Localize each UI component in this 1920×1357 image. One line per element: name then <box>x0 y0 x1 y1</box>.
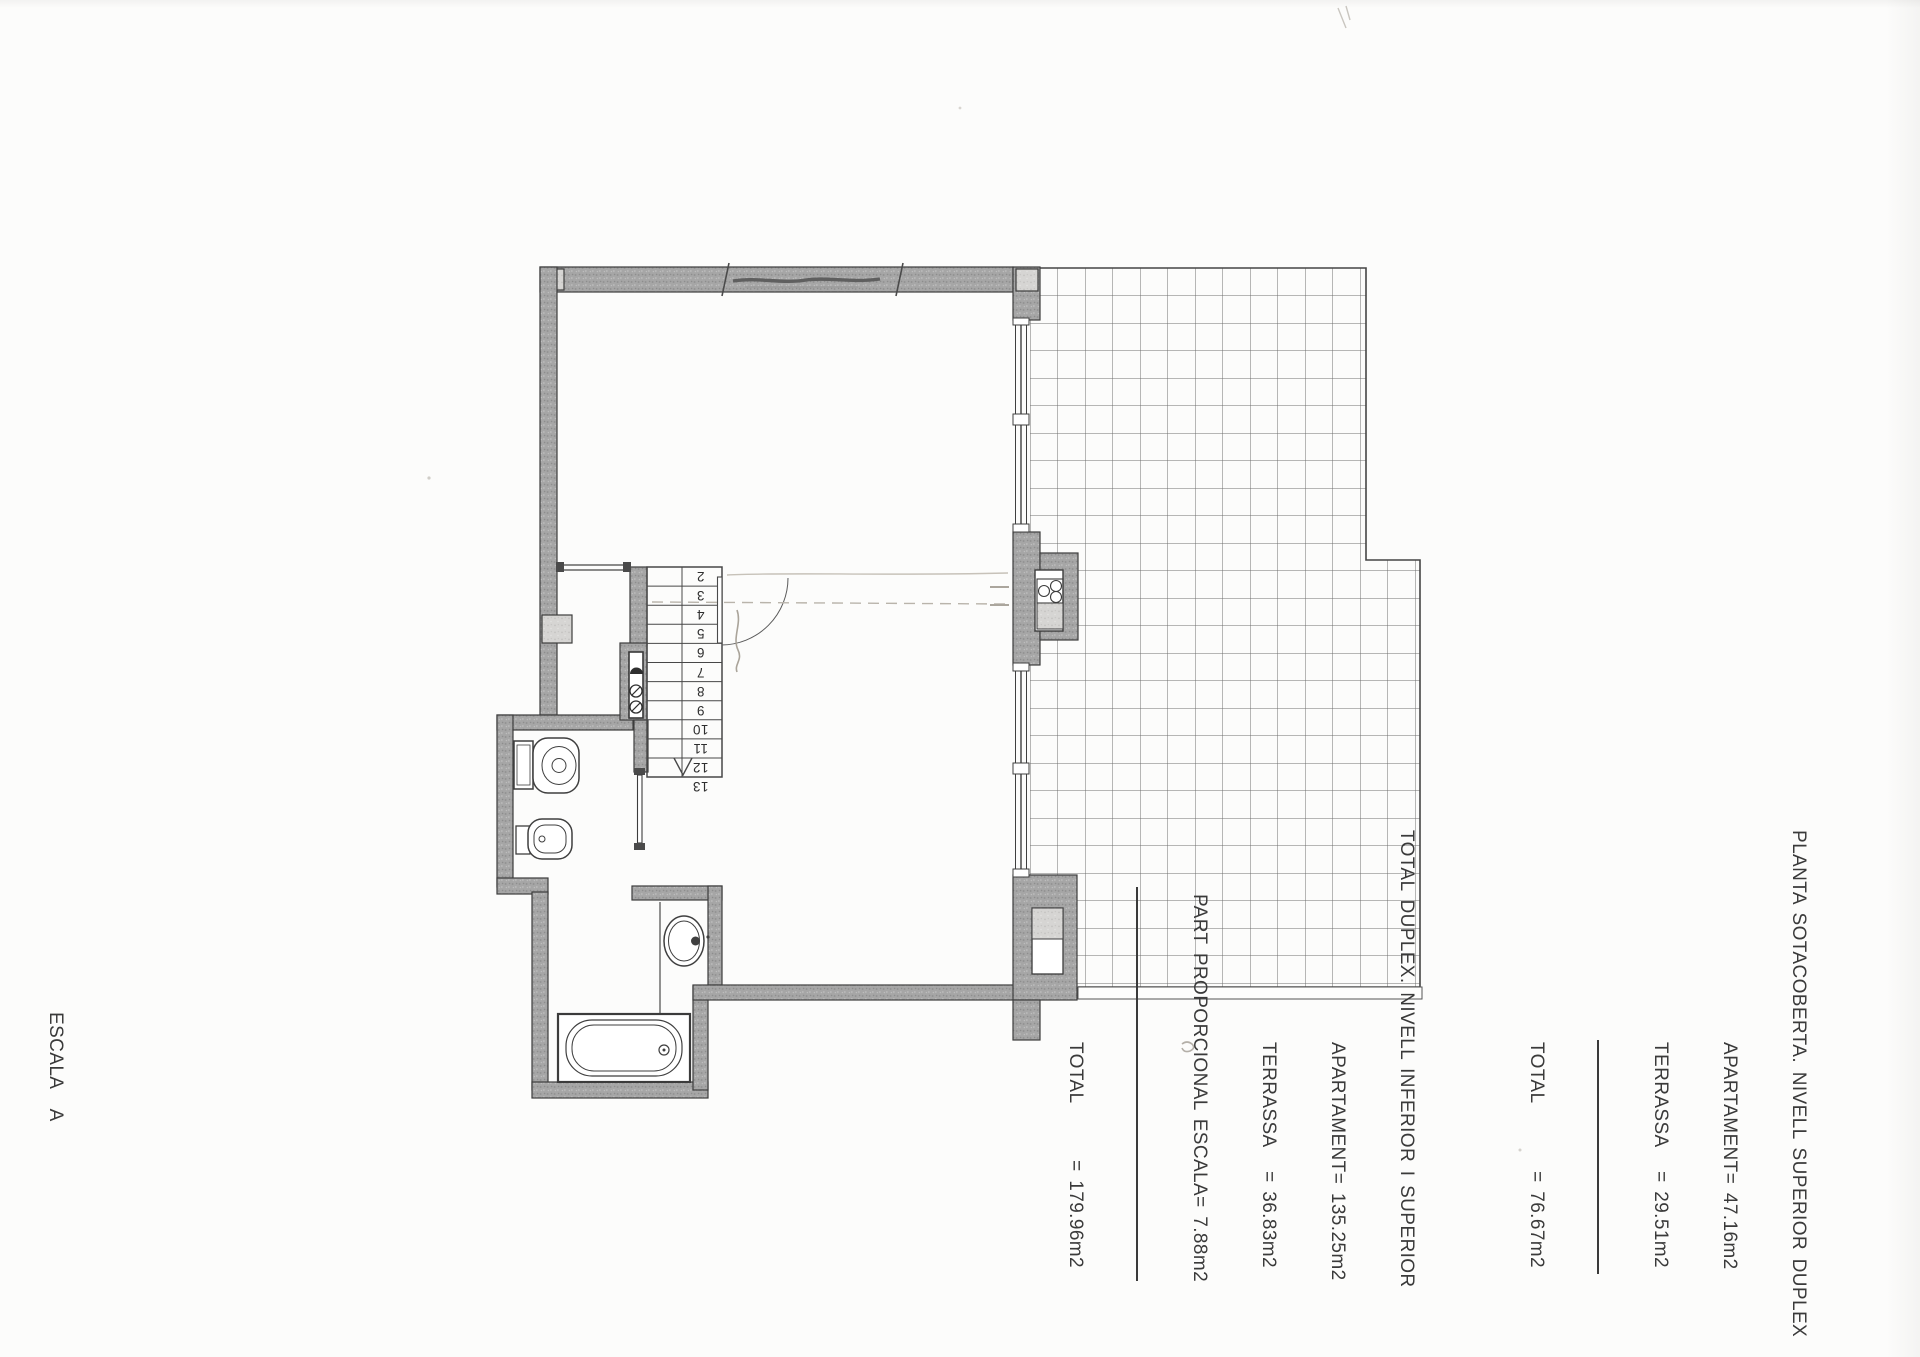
wall-hall-bottom <box>693 985 1015 1000</box>
cooktop-burner <box>1039 586 1050 597</box>
wall-door-stub <box>634 720 648 772</box>
row-label: PART PROPORCIONAL ESCALA <box>1188 894 1211 1196</box>
summary-row: TERRASSA = 36.83m2 <box>1257 830 1280 1300</box>
room-door <box>718 577 789 645</box>
kitchen-counter <box>1035 570 1063 631</box>
wall-bath-left-lower <box>532 892 548 1090</box>
scanned-floor-plan-page: { "summary_upper": { "title": "PLANTA SO… <box>0 0 1920 1357</box>
row-value: = 36.83m2 <box>1257 1171 1280 1268</box>
wall-bath-right-lower <box>693 986 708 1090</box>
summary-row: TERRASSA = 29.51m2 <box>1649 830 1672 1300</box>
row-value: = 7.88m2 <box>1188 1196 1211 1282</box>
drawing-label-line: ESCALA A <box>44 1012 67 1312</box>
wall-nook-right <box>708 886 722 985</box>
pencil-window-mark <box>733 279 880 281</box>
row-label: TERRASSA <box>1649 1042 1672 1148</box>
summary-row: PART PROPORCIONAL ESCALA = 7.88m2 <box>1188 830 1211 1300</box>
summary-rule <box>1597 1040 1599 1274</box>
stair-step-number: 11 <box>679 739 722 758</box>
cooktop-burner <box>1051 592 1062 603</box>
summary-total-title: TOTAL DUPLEX. NIVELL INFERIOR I SUPERIOR <box>1395 830 1418 1300</box>
faucet <box>691 937 700 946</box>
stair-step-number: 13 <box>679 777 722 796</box>
window-terrace-lower <box>1013 663 1029 877</box>
bathtub <box>558 1014 690 1082</box>
row-value: = 76.67m2 <box>1525 1171 1548 1268</box>
stair-step-number: 3 <box>679 586 722 605</box>
summary-upper-title: PLANTA SOTACOBERTA. NIVELL SUPERIOR DUPL… <box>1787 830 1810 1300</box>
pillar-left-bump <box>542 615 572 643</box>
bathroom-sliding-door <box>634 768 645 850</box>
wall-stair-upper <box>630 567 647 645</box>
summary-rule <box>1136 887 1138 1281</box>
stair-step-number: 9 <box>679 701 722 720</box>
wall-bath-left-upper <box>497 715 513 887</box>
pencil-squiggle <box>736 610 740 672</box>
wall-left <box>540 267 557 715</box>
service-shaft <box>629 652 643 718</box>
wall-bottom-stub <box>1013 1000 1040 1040</box>
row-value: = 135.25m2 <box>1326 1173 1349 1281</box>
kitchen-worktop <box>1037 603 1063 629</box>
row-value: = 179.96m2 <box>1064 1160 1087 1268</box>
row-label: APARTAMENT <box>1326 1042 1349 1173</box>
row-label: APARTAMENT <box>1718 1042 1741 1173</box>
walls <box>497 267 1078 1098</box>
row-label: TOTAL <box>1525 1042 1548 1103</box>
stair-step-number: 6 <box>679 643 722 662</box>
summary-total-row: TOTAL = 179.96m2 <box>1064 830 1087 1300</box>
wall-bath-bottom <box>532 1082 708 1098</box>
row-label: TOTAL <box>1064 1042 1087 1103</box>
row-label: TERRASSA <box>1257 1042 1280 1148</box>
stair-step-number: 2 <box>679 567 722 586</box>
summary-row: APARTAMENT = 135.25m2 <box>1326 830 1349 1300</box>
area-summary-block: PLANTA SOTACOBERTA. NIVELL SUPERIOR DUPL… <box>1041 830 1856 1300</box>
stair-step-number: 4 <box>679 605 722 624</box>
stair-step-numbers: 2345678910111213 <box>679 567 722 817</box>
summary-row: APARTAMENT = 47.16m2 <box>1718 830 1741 1300</box>
toilet <box>514 738 579 793</box>
window-terrace-upper <box>1013 318 1029 532</box>
row-value: = 29.51m2 <box>1649 1171 1672 1268</box>
summary-total-row: TOTAL = 76.67m2 <box>1525 830 1548 1300</box>
stair-step-number: 12 <box>679 758 722 777</box>
stair-step-number: 8 <box>679 682 722 701</box>
bidet <box>516 819 572 859</box>
stair-step-number: 10 <box>679 720 722 739</box>
stair-step-number: 7 <box>679 663 722 682</box>
stair-step-number: 5 <box>679 624 722 643</box>
wall-bath-top <box>497 715 633 730</box>
cooktop-burner <box>1051 581 1062 592</box>
door-swing-arc <box>722 578 789 645</box>
row-value: = 47.16m2 <box>1718 1173 1741 1270</box>
stair-railing <box>556 562 631 572</box>
drawing-label-block: ESCALA A PLANTA SOTACOBERTA. PORTA 1 DUP… <box>0 1012 113 1312</box>
